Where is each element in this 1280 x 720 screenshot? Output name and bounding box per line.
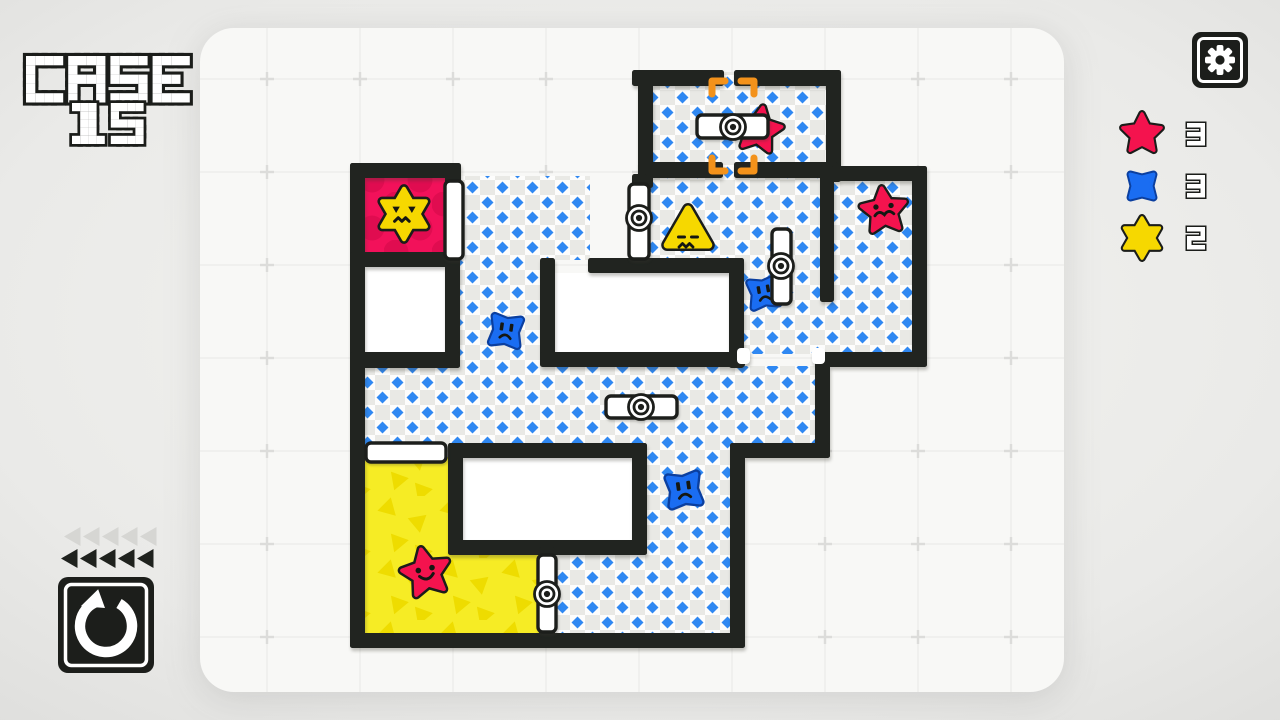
door-pivot-icon (535, 582, 560, 607)
door-jamb-cap (812, 348, 825, 364)
wall (448, 443, 647, 458)
wall (632, 443, 647, 555)
wall (540, 258, 555, 358)
game-canvas (0, 0, 1280, 720)
wall (445, 252, 460, 368)
floor-tile-area (555, 553, 732, 635)
rotating-door[interactable] (769, 229, 794, 304)
floor-tile-area (460, 258, 542, 370)
rotating-door[interactable] (606, 395, 677, 420)
rotating-door[interactable] (535, 555, 560, 632)
door[interactable] (366, 443, 446, 462)
wall (912, 166, 927, 367)
settings-button[interactable] (1192, 32, 1248, 88)
wall (815, 352, 830, 458)
creature-blue-cross4 (1130, 174, 1153, 197)
floor-tile-area (364, 366, 816, 445)
wall (448, 443, 463, 555)
wall (350, 352, 460, 368)
empty-room (463, 458, 632, 541)
rotating-door[interactable] (697, 115, 768, 140)
gear-icon (1205, 45, 1235, 75)
wall (588, 258, 744, 273)
game-screen (0, 0, 1280, 720)
wall (350, 163, 365, 648)
wall (815, 352, 927, 367)
door-pivot-icon (769, 254, 794, 279)
door-pivot-icon (721, 115, 746, 140)
wall (820, 166, 834, 302)
wall (730, 443, 745, 648)
door-pivot-icon (627, 206, 652, 231)
empty-room (555, 273, 729, 353)
rotating-door[interactable] (627, 184, 652, 259)
wall (350, 163, 460, 178)
wall (826, 166, 927, 181)
creature-blue-cross4 (668, 474, 700, 506)
door-pivot-icon (629, 395, 654, 420)
empty-room (365, 267, 445, 353)
yellow-room-floor (364, 457, 449, 635)
wall (540, 352, 745, 367)
creature-blue-cross4 (491, 316, 520, 345)
yellow-room-floor (447, 553, 540, 635)
floor-tile-area (460, 176, 590, 260)
undo-button[interactable] (58, 577, 154, 673)
door-jamb-cap (737, 348, 750, 364)
door[interactable] (445, 181, 463, 259)
